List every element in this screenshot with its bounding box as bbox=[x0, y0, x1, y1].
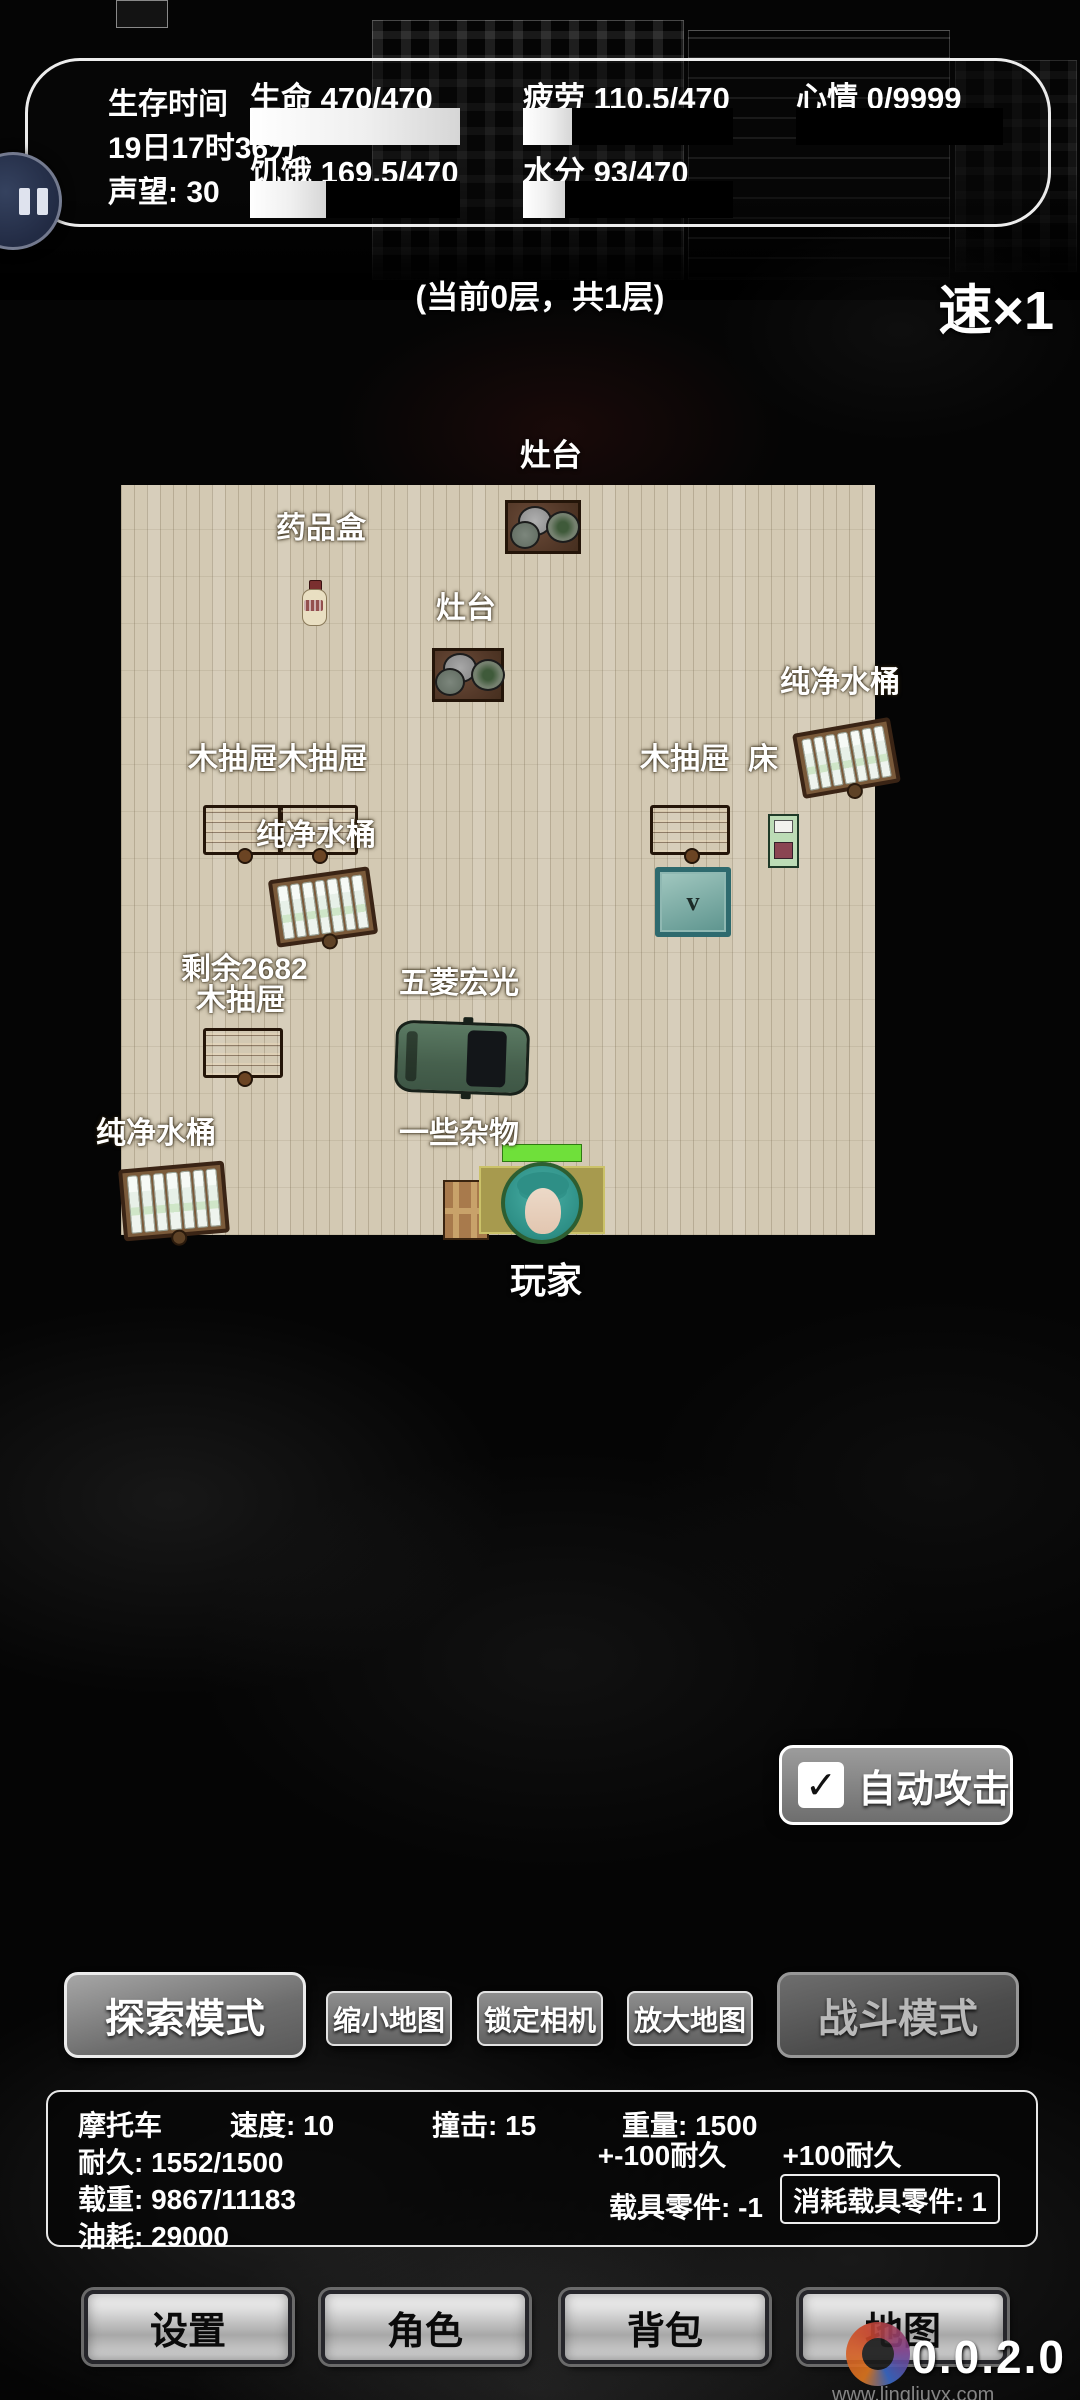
vehicle-load: 载重: 9867/11183 bbox=[78, 2178, 296, 2218]
nav-backpack-button[interactable]: 背包 bbox=[561, 2290, 769, 2364]
auto-attack-toggle[interactable]: ✓ 自动攻击 bbox=[779, 1745, 1013, 1825]
mood-bar bbox=[796, 108, 1003, 145]
chest-glyph-icon: v bbox=[687, 887, 700, 917]
player-caption: 玩家 bbox=[446, 1252, 646, 1304]
burner-icon bbox=[471, 659, 505, 691]
checkbox-checked-icon[interactable]: ✓ bbox=[798, 1762, 844, 1808]
floor-info: (当前0层，共1层) bbox=[0, 272, 1080, 318]
map-label-wood-drawer-double: 木抽屉木抽屉 bbox=[173, 734, 383, 778]
water-barrel-crate-sprite[interactable] bbox=[268, 866, 378, 948]
speed-indicator[interactable]: 速×1 bbox=[938, 266, 1054, 345]
lock-camera-button[interactable]: 锁定相机 bbox=[477, 1991, 603, 2046]
avatar-face-icon bbox=[525, 1188, 561, 1234]
repair-minus-button[interactable]: +-100耐久 bbox=[582, 2134, 742, 2174]
watermark-url: www.lingliuyx.com bbox=[832, 2384, 994, 2400]
game-screen: 生存时间 19日17时36分 声望: 30 生命 470/470 饥饿 169.… bbox=[0, 0, 1080, 2400]
water-bottle-icon bbox=[205, 1168, 221, 1227]
hunger-bar bbox=[250, 181, 460, 218]
map-label-medicine-box: 药品盒 bbox=[241, 503, 401, 547]
burner-icon bbox=[435, 668, 465, 696]
hunger-bar-fill bbox=[250, 181, 326, 218]
map-label-misc-items: 一些杂物 bbox=[399, 1108, 519, 1152]
fatigue-bar bbox=[523, 108, 733, 145]
enlarge-map-button[interactable]: 放大地图 bbox=[627, 1991, 753, 2046]
wood-drawer-sprite[interactable] bbox=[650, 805, 730, 855]
survival-time-label: 生存时间 bbox=[108, 79, 228, 123]
vehicle-name: 摩托车 bbox=[78, 2104, 162, 2144]
watermark-logo-icon bbox=[846, 2322, 910, 2386]
map-label-stove-top: 灶台 bbox=[451, 430, 651, 475]
wood-drawer-sprite[interactable] bbox=[203, 1028, 283, 1078]
water-barrel-crate-sprite[interactable] bbox=[118, 1161, 230, 1242]
water-bar-fill bbox=[523, 181, 565, 218]
reputation-value: 声望: 30 bbox=[108, 167, 220, 211]
map-label-water-barrel-bottom: 纯净水桶 bbox=[96, 1108, 216, 1152]
map-label-bed: 床 bbox=[748, 734, 778, 778]
vehicle-durability: 耐久: 1552/1500 bbox=[78, 2141, 283, 2181]
wuling-van-sprite[interactable] bbox=[394, 1020, 530, 1097]
version-number: 0.0.2.0 bbox=[911, 2330, 1066, 2384]
consume-parts-button[interactable]: 消耗载具零件: 1 bbox=[780, 2174, 1000, 2224]
car-mirror-icon bbox=[461, 1092, 471, 1099]
medicine-bottle-sprite[interactable] bbox=[302, 580, 327, 626]
health-bar-fill bbox=[250, 108, 460, 145]
car-windshield-icon bbox=[466, 1030, 506, 1087]
map-label-vehicle-wuling: 五菱宏光 bbox=[399, 958, 519, 1002]
vehicle-fuel: 油耗: 29000 bbox=[78, 2215, 229, 2255]
fatigue-bar-fill bbox=[523, 108, 572, 145]
car-mirror-icon bbox=[463, 1017, 473, 1024]
car-rear-window-icon bbox=[405, 1031, 418, 1082]
map-label-water-barrel-midleft: 纯净水桶 bbox=[256, 810, 376, 854]
map-viewport[interactable]: v 药品盒 灶台 纯净水桶 木抽屉木抽屉 木抽屉 床 纯净水桶 剩余2682 木… bbox=[121, 485, 875, 1235]
vehicle-info-panel: 摩托车 速度: 10 撞击: 15 重量: 1500 耐久: 1552/1500… bbox=[46, 2090, 1038, 2247]
bottle-label-icon bbox=[304, 600, 323, 611]
nav-settings-button[interactable]: 设置 bbox=[84, 2290, 292, 2364]
auto-attack-label: 自动攻击 bbox=[858, 1758, 1010, 1813]
health-bar bbox=[250, 108, 460, 145]
repair-plus-button[interactable]: +100耐久 bbox=[767, 2134, 917, 2174]
vehicle-impact: 撞击: 15 bbox=[432, 2104, 536, 2144]
vehicle-speed: 速度: 10 bbox=[230, 2104, 334, 2144]
stove-sprite[interactable] bbox=[505, 500, 581, 554]
water-bar bbox=[523, 181, 733, 218]
shrink-map-button[interactable]: 缩小地图 bbox=[326, 1991, 452, 2046]
burner-icon bbox=[546, 511, 580, 543]
vehicle-parts-count: 载具零件: -1 bbox=[606, 2186, 766, 2226]
teal-chest-sprite[interactable]: v bbox=[655, 867, 731, 937]
map-label-wood-drawer-left: 木抽屉 bbox=[196, 975, 286, 1019]
vending-machine-sprite[interactable] bbox=[768, 814, 799, 868]
pause-icon bbox=[37, 188, 48, 215]
pause-icon bbox=[19, 188, 30, 215]
stove-sprite[interactable] bbox=[432, 648, 504, 702]
player-avatar[interactable] bbox=[501, 1162, 583, 1244]
battle-mode-button[interactable]: 战斗模式 bbox=[777, 1972, 1019, 2058]
explore-mode-button[interactable]: 探索模式 bbox=[64, 1972, 306, 2058]
nav-character-button[interactable]: 角色 bbox=[321, 2290, 529, 2364]
burner-icon bbox=[510, 521, 540, 549]
status-panel: 生存时间 19日17时36分 声望: 30 生命 470/470 饥饿 169.… bbox=[25, 58, 1051, 227]
map-label-wood-drawer-right: 木抽屉 bbox=[640, 734, 730, 778]
water-barrel-crate-sprite[interactable] bbox=[792, 717, 901, 799]
map-label-water-barrel-right: 纯净水桶 bbox=[760, 657, 920, 701]
map-label-stove-mid: 灶台 bbox=[391, 583, 541, 627]
